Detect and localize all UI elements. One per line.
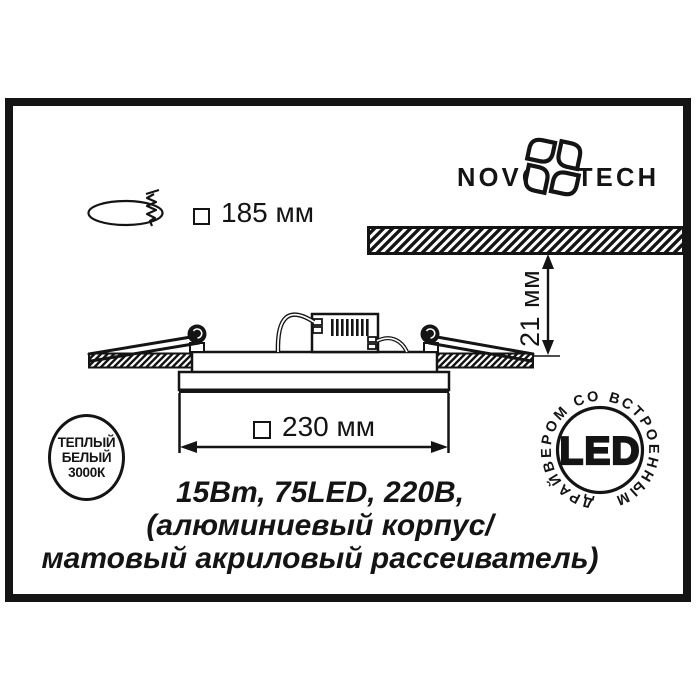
depth-dimension-text: 21 мм — [515, 270, 545, 347]
logo-text-tech: TECH — [577, 164, 659, 192]
depth-dimension: 21 мм — [515, 254, 560, 356]
specs-text: 15Вт, 75LED, 220В, (алюминиевый корпус/ … — [20, 476, 620, 575]
ceiling-section — [369, 228, 684, 254]
arrow-left-icon — [180, 441, 197, 453]
led-badge-center-text: LED — [560, 430, 641, 473]
driver-box — [312, 314, 378, 352]
logo-flower-icon — [521, 135, 585, 199]
ceiling-flange-right — [437, 354, 533, 368]
specs-line2: (алюминиевый корпус/ — [20, 509, 620, 542]
mounting-plate — [192, 352, 437, 373]
ceiling-flange-left — [89, 354, 192, 368]
width-dimension-arrow — [180, 441, 448, 453]
body-dimension-text: 230 мм — [282, 413, 375, 441]
arrow-right-icon — [431, 441, 448, 453]
trim-frame — [179, 372, 449, 390]
warm-white-line1: ТЕПЛЫЙ — [58, 435, 116, 450]
novotech-logo: NOVO TECH — [440, 128, 665, 206]
specs-line3: матовый акриловый рассеиватель) — [20, 542, 620, 575]
warm-white-line2: БЕЛЫЙ — [62, 450, 112, 465]
screw-slot-icon — [146, 190, 159, 194]
arrow-up-icon — [542, 254, 554, 269]
square-symbol — [253, 421, 271, 439]
specs-line1: 15Вт, 75LED, 220В, — [20, 476, 620, 509]
trim-frame-edge — [179, 389, 449, 394]
spec-sheet: 185 мм NOVO TECH 21 мм — [0, 0, 700, 700]
body-dimension-label: 230 мм — [179, 413, 449, 441]
